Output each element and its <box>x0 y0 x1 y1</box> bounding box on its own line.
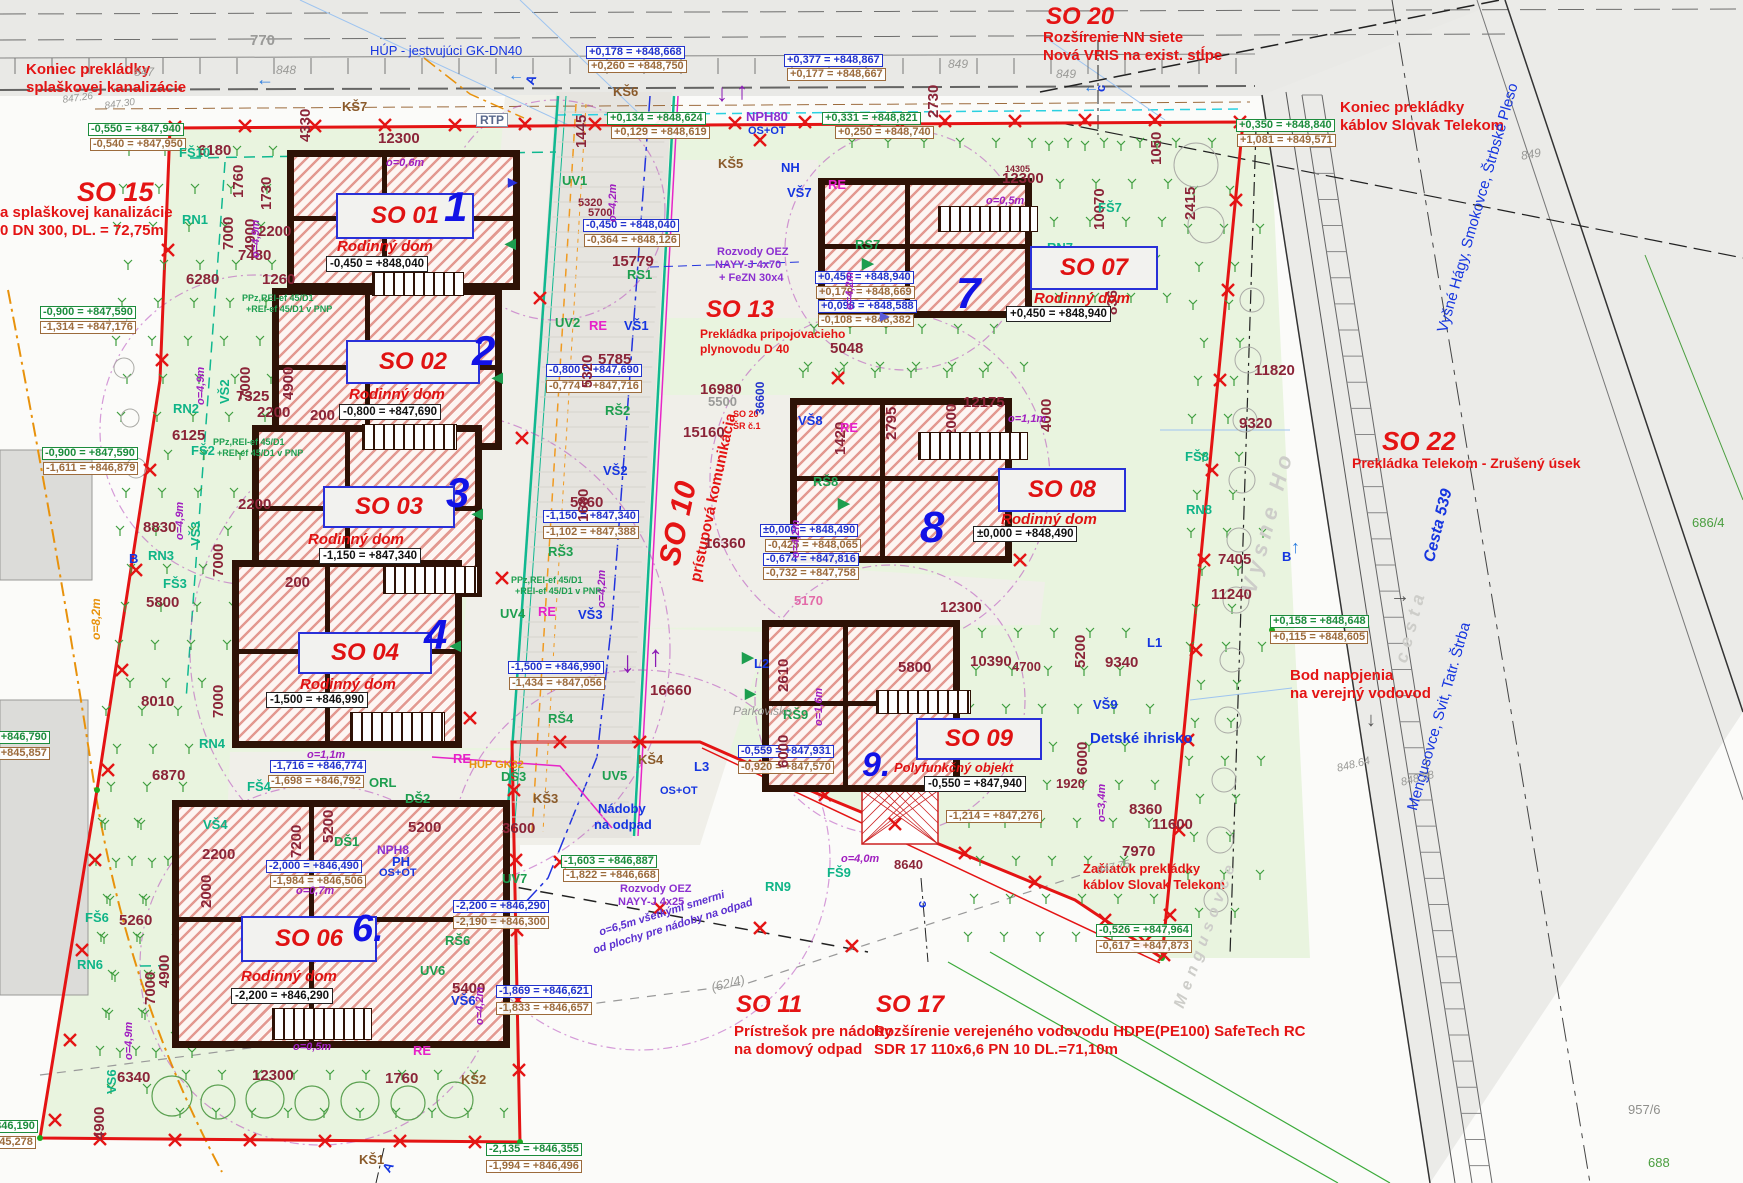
building-so-08-label: SO 08 <box>998 468 1126 512</box>
label-847-30: 847.30 <box>104 98 136 112</box>
dimension-12300: 12300 <box>378 131 420 146</box>
building-so-02-type: Rodinný dom <box>349 386 445 403</box>
elevation-marker-0-260-848-750: +0,260 = +848,750 <box>588 60 687 73</box>
dimension-6340: 6340 <box>117 1070 150 1085</box>
arrow-marker: ◀ <box>472 506 483 520</box>
object-title-so-20: SO 20 <box>1046 5 1114 29</box>
elevation-marker-0-425-848-065: -0,425 = +848,065 <box>765 539 861 552</box>
building-so-06-stair <box>272 1008 372 1040</box>
arrow-marker: ↓ <box>1366 710 1376 730</box>
infra-d-2: DŠ2 <box>405 792 430 805</box>
infra-k-2: KŠ2 <box>461 1073 486 1086</box>
elevation-marker-0-732-847-758: -0,732 = +847,758 <box>763 567 859 580</box>
dimension-16360: 16360 <box>704 536 746 551</box>
label-848-64: 848.64 <box>1336 756 1371 775</box>
infra-re: RE <box>840 421 858 434</box>
dimension-11820: 11820 <box>1254 363 1295 378</box>
dimension-6280: 6280 <box>186 272 219 287</box>
label-o-4-2m: o=4,2m <box>608 184 619 222</box>
label-847-26: 847.26 <box>62 92 94 106</box>
infra-re: RE <box>413 1044 431 1057</box>
infra-re: RE <box>538 605 556 618</box>
dimension-2200: 2200 <box>238 497 271 512</box>
infra-f-7: FŠ7 <box>1098 201 1122 214</box>
arrow-marker: ▶ <box>745 686 756 700</box>
object-note-roz-renie-nn-siete: Rozšírenie NN siete <box>1043 30 1183 45</box>
dimension-2200: 2200 <box>258 224 291 239</box>
dimension-1760: 1760 <box>385 1071 418 1086</box>
arrow-marker: ↓ <box>716 82 728 106</box>
dimension-14305: 14305 <box>1005 165 1030 174</box>
elevation-marker-0-115-848-605: +0,115 = +848,605 <box>1270 631 1368 644</box>
dimension-36600: 36600 <box>754 382 766 415</box>
dimension-7000: 7000 <box>211 685 226 718</box>
arrow-marker: ▶ <box>742 650 754 665</box>
infra-r-4: RŠ4 <box>548 712 573 725</box>
elevation-marker-0-179-848-669: +0,179 = +848,669 <box>816 286 915 299</box>
object-note-bod-napojenia: Bod napojenia <box>1290 668 1393 683</box>
label-fezn-30x4: + FeZN 30x4 <box>719 273 784 284</box>
dimension-770: 770 <box>250 33 275 48</box>
building-so-08-stair <box>918 432 1028 460</box>
elevation-marker-1-869-846-621: -1,869 = +846,621 <box>496 985 592 998</box>
elevation-marker-0-450-848-040: -0,450 = +848,040 <box>583 219 679 232</box>
building-so-03-type: Rodinný dom <box>308 531 404 548</box>
dimension-200: 200 <box>285 575 310 590</box>
elevation-marker-0-331-848-821: +0,331 = +848,821 <box>822 112 921 125</box>
elevation-marker-1-102-847-388: -1,102 = +847,388 <box>543 526 639 539</box>
dimension-5320: 5320 <box>580 355 595 388</box>
elevation-marker-0-158-848-648: +0,158 = +848,648 <box>1270 615 1369 628</box>
infra-rn6: RN6 <box>77 958 103 971</box>
elevation-marker-0-000-848-490: ±0,000 = +848,490 <box>760 524 858 537</box>
building-so-09-elevation: -0,550 = +847,940 <box>924 776 1026 792</box>
label-parkovisko: Parkovisko <box>733 705 792 717</box>
building-so-02-number: 2 <box>472 330 495 372</box>
dimension-1050: 1050 <box>1149 132 1164 165</box>
label-detsk-ihrisko: Detské ihrisko <box>1090 731 1193 746</box>
label-849: 849 <box>1056 68 1076 80</box>
building-so-08-elevation: ±0,000 = +848,490 <box>973 526 1077 542</box>
label-na-odpad: na odpad <box>594 818 652 831</box>
arrow-marker: ↑ <box>1291 538 1300 556</box>
infra-rn1: RN1 <box>182 213 208 226</box>
infra-r-8: RŠ8 <box>813 475 838 488</box>
infra-k-4: KŠ4 <box>638 753 663 766</box>
elevation-marker-1-500-846-990: -1,500 = +846,990 <box>508 661 604 674</box>
elevation-marker-1-081-849-571: +1,081 = +849,571 <box>1237 134 1336 147</box>
arrow-marker: ← <box>508 68 524 84</box>
label-b: B <box>1282 550 1291 563</box>
building-so-03-stair <box>383 566 478 594</box>
label-rozvody-oez: Rozvody OEZ <box>717 247 789 258</box>
label-o-0-7m: o=0,7m <box>296 886 334 897</box>
building-so-07-number: 7 <box>956 272 980 316</box>
elevation-marker-2-633-845-857: -2,633 = +845,857 <box>0 747 50 760</box>
building-so-03-label: SO 03 <box>323 486 455 528</box>
label-o-4-9m: o=4,9m <box>124 1022 135 1060</box>
site-plan-canvas: SO 011Rodinný dom-0,450 = +848,040SO 022… <box>0 0 1743 1183</box>
elevation-marker-0-550-847-940: -0,550 = +847,940 <box>88 123 184 136</box>
arrow-marker: → <box>1390 586 1410 606</box>
label-849: 849 <box>1520 147 1542 162</box>
building-so-01-number: 1 <box>444 186 467 228</box>
elevation-marker-1-822-846-668: -1,822 = +846,668 <box>563 869 659 882</box>
object-title-so-15: SO 15 <box>77 179 154 206</box>
building-so-06-elevation: -2,200 = +846,290 <box>231 988 333 1004</box>
label-o-4-9m: o=4,9m <box>175 502 186 540</box>
infra-k-6: KŠ6 <box>613 85 638 98</box>
label-o-3-4m: o=3,4m <box>1097 784 1108 822</box>
infra-r-2: RŠ2 <box>605 404 630 417</box>
elevation-marker-1-833-846-657: -1,833 = +846,657 <box>496 1002 592 1015</box>
label-849: 849 <box>948 58 968 70</box>
elevation-marker-2-190-846-300: -2,190 = +846,300 <box>453 916 549 929</box>
elevation-marker-0-134-848-624: +0,134 = +848,624 <box>607 112 706 125</box>
building-so-07-type: Rodinný dom <box>1034 290 1130 307</box>
infra-d-1: DŠ1 <box>334 835 359 848</box>
infra-rs1: RS1 <box>627 268 652 281</box>
infra-uv6: UV6 <box>420 964 445 977</box>
object-title-so-13: SO 13 <box>706 298 774 322</box>
label-848: 848 <box>276 64 296 76</box>
object-note-a-spla-kovej-kanaliz-cie: a splaškovej kanalizácie <box>0 205 173 220</box>
dimension-16660: 16660 <box>650 683 692 698</box>
dimension-200: 200 <box>310 408 335 423</box>
arrow-marker: ↑ <box>648 642 663 672</box>
label-o-4-0m: o=4,0m <box>841 854 879 865</box>
dimension-5048: 5048 <box>830 341 863 356</box>
elevation-marker-2-000-846-490: -2,000 = +846,490 <box>266 860 362 873</box>
label-os-ot: OS+OT <box>660 786 698 797</box>
arrow-marker: ↑ <box>736 80 748 104</box>
dimension-8010: 8010 <box>141 694 174 709</box>
object-note-sdr-17-110x6-6-pn-10-dl-71-10m: SDR 17 110x6,6 PN 10 DL.=71,10m <box>874 1042 1118 1057</box>
label-o-8-2m: o=8,2m <box>90 598 102 640</box>
elevation-marker-1-603-846-887: -1,603 = +846,887 <box>561 855 657 868</box>
infra-v-2: VŠ2 <box>218 379 231 404</box>
dimension-5320: 5320 <box>578 198 602 209</box>
label-o-1-1m: o=1,1m <box>307 750 345 761</box>
label-ppz-rei-ef-45-d1: PPz,REI-ef 45/D1 <box>213 438 285 447</box>
arrow-marker: ← <box>1083 80 1099 96</box>
elevation-marker-0-900-847-590: -0,900 = +847,590 <box>42 447 138 460</box>
infra-f-8: FŠ8 <box>1185 450 1209 463</box>
building-so-01-type: Rodinný dom <box>337 238 433 255</box>
elevation-marker-1-434-847-056: -1,434 = +847,056 <box>509 677 605 690</box>
dimension-1920: 1920 <box>1056 777 1085 790</box>
label-o-1-6m: o=1,6m <box>814 688 825 726</box>
infra-v-6: VŠ6 <box>451 994 476 1007</box>
label-hup-gk32: HUP GK32 <box>469 760 524 771</box>
infra-v-8: VŠ8 <box>798 414 823 427</box>
building-so-04-label: SO 04 <box>298 632 432 674</box>
label-nayy-j-4x70: NAYY-J 4x70 <box>715 260 781 271</box>
building-so-06-type: Rodinný dom <box>241 968 337 985</box>
infra-l1: L1 <box>1147 636 1162 649</box>
label-847: 847 <box>134 66 154 78</box>
dimension-2795: 2795 <box>884 407 899 440</box>
label-vysne-ho: Vysne Ho <box>1238 447 1298 596</box>
object-note-k-blov-slovak-telekom: káblov Slovak Telekom <box>1340 118 1504 133</box>
infra-v-3: VŠ3 <box>189 521 202 546</box>
dimension-5800: 5800 <box>146 595 179 610</box>
dimension-2000: 2000 <box>199 875 214 908</box>
label-h-p-jestvuj-ci-gk-dn40: HÚP - jestvujúci GK-DN40 <box>370 44 522 57</box>
object-note-k-blov-slovak-telekom: káblov Slovak Telekom <box>1083 878 1225 891</box>
building-so-07-label: SO 07 <box>1030 246 1158 290</box>
arrow-marker: ▶ <box>508 176 517 188</box>
object-note-plynovodu-d-40: plynovodu D 40 <box>700 343 789 355</box>
infra-k-5: KŠ5 <box>718 157 743 170</box>
dimension-2200: 2200 <box>202 847 235 862</box>
elevation-marker-1-716-846-774: -1,716 = +846,774 <box>270 760 366 773</box>
infra-d-3: DŠ3 <box>501 770 526 783</box>
label-cesta-539: Cesta 539 <box>1422 488 1456 564</box>
object-note-prekl-dka-pripojovacieho: Prekládka pripojovacieho <box>700 328 845 340</box>
dimension-3600: 3600 <box>502 821 535 836</box>
label-os-ot: OS+OT <box>379 868 417 879</box>
building-so-09-stair <box>876 690 971 714</box>
elevation-marker-1-214-847-276: -1,214 = +847,276 <box>946 810 1042 823</box>
building-so-07-stair <box>938 206 1038 232</box>
infra-f-10: FŠ10 <box>179 146 210 159</box>
infra-uv1: UV1 <box>562 174 587 187</box>
label-rtp: RTP <box>476 113 508 127</box>
building-so-06-number: 6. <box>352 910 384 948</box>
dimension-1760: 1760 <box>231 165 246 198</box>
label-c: c <box>915 901 928 908</box>
elevation-marker-0-364-848-126: -0,364 = +848,126 <box>584 234 680 247</box>
elevation-marker-3-212-845-278: -3,212 = +845,278 <box>0 1136 36 1149</box>
elevation-marker-0-250-848-740: +0,250 = +848,740 <box>835 126 934 139</box>
infra-v-2: VŠ2 <box>603 464 628 477</box>
object-title-so-17: SO 17 <box>876 993 944 1017</box>
label-rei-ef-45-d1-v-pnp: +REI-ef 45/D1 v PNP <box>246 305 332 314</box>
dimension-2730: 2730 <box>926 85 941 118</box>
elevation-marker-0-129-848-619: +0,129 = +848,619 <box>611 126 710 139</box>
elevation-marker-1-698-846-792: -1,698 = +846,792 <box>268 775 364 788</box>
infra-f-9: FŠ9 <box>827 866 851 879</box>
building-so-02-label: SO 02 <box>346 340 480 384</box>
object-note-pr-stre-ok-pre-n-doby: Prístrešok pre nádoby <box>734 1024 892 1039</box>
arrow-marker: ▶ <box>880 310 889 322</box>
dimension-7200: 7200 <box>289 825 304 858</box>
dimension-8360: 8360 <box>1129 802 1162 817</box>
label-957-6: 957/6 <box>1628 1103 1661 1116</box>
dimension-5200: 5200 <box>408 820 441 835</box>
elevation-marker-0-526-847-964: -0,526 = +847,964 <box>1096 924 1192 937</box>
object-note-0-dn-300-dl-72-75m: 0 DN 300, DL. = 72,75m <box>0 223 164 238</box>
object-note-na-verejn-vodovod: na verejný vodovod <box>1290 686 1431 701</box>
infra-nh: NH <box>781 161 800 174</box>
dimension-5200: 5200 <box>1073 635 1088 668</box>
dimension-9340: 9340 <box>1105 655 1138 670</box>
elevation-marker-0-177-848-667: +0,177 = +848,667 <box>787 68 886 81</box>
dimension-6000: 6000 <box>776 735 791 768</box>
object-note-prekl-dka-telekom-zru-en-sek: Prekládka Telekom - Zrušený úsek <box>1352 456 1581 470</box>
dimension-12300: 12300 <box>252 1068 294 1083</box>
building-so-09-number: 9. <box>862 748 890 782</box>
elevation-marker-0-377-848-867: +0,377 = +848,867 <box>784 54 883 67</box>
dimension-1260: 1260 <box>262 272 295 287</box>
infra-f-2: FŠ2 <box>191 444 215 457</box>
dimension-5800: 5800 <box>898 660 931 675</box>
building-so-04-number: 4 <box>424 614 447 656</box>
labels-layer: SO 15a splaškovej kanalizácie0 DN 300, D… <box>0 0 1743 1183</box>
label-rei-ef-45-d1-v-pnp: +REI-ef 45/D1 v PNP <box>217 449 303 458</box>
dimension-6870: 6870 <box>152 768 185 783</box>
infra-v-7: VŠ7 <box>787 186 812 199</box>
infra-f-4: FŠ4 <box>247 780 271 793</box>
elevation-marker-0-098-848-588: +0,098 = +848,588 <box>818 300 917 313</box>
elevation-marker-0-178-848-668: +0,178 = +848,668 <box>586 46 685 59</box>
arrow-marker: ◀ <box>505 236 516 250</box>
dimension-6125: 6125 <box>172 428 205 443</box>
label-b: B <box>129 552 138 565</box>
arrow-marker: ← <box>256 70 274 88</box>
object-note-spla-kovej-kanaliz-cie: splaškovej kanalizácie <box>26 80 186 95</box>
building-so-04-stair <box>350 712 445 742</box>
arrow-marker: ↓ <box>620 648 635 678</box>
dimension-1730: 1730 <box>259 177 274 210</box>
elevation-marker-2-135-846-355: -2,135 = +846,355 <box>486 1143 582 1156</box>
arrow-marker: ▶ <box>838 496 850 511</box>
building-so-04-type: Rodinný dom <box>300 676 396 693</box>
building-so-01-elevation: -0,450 = +848,040 <box>326 256 428 272</box>
infra-f-3: FŠ3 <box>163 577 187 590</box>
infra-l2: L2 <box>754 657 769 670</box>
label-o-0-5m: o=0,5m <box>293 1042 331 1053</box>
label-o-4-9m: o=4,9m <box>196 367 207 405</box>
dimension-7000: 7000 <box>221 217 236 250</box>
building-so-02-elevation: -0,800 = +847,690 <box>339 404 441 420</box>
infra-v-4: VŠ4 <box>203 818 228 831</box>
dimension-8830: 8830 <box>143 520 176 535</box>
label-o-4-2m: o=4,2m <box>791 520 802 558</box>
dimension-4900: 4900 <box>157 955 172 988</box>
elevation-marker-1-994-846-496: -1,994 = +846,496 <box>486 1160 582 1173</box>
infra-rn8: RN8 <box>1186 503 1212 516</box>
label-rozvody-oez: Rozvody OEZ <box>620 884 692 895</box>
dimension-9320: 9320 <box>1239 416 1272 431</box>
label-o-4-9m: o=4,9m <box>251 220 262 258</box>
label-os-ot: OS+OT <box>748 126 786 137</box>
building-so-09-label: SO 09 <box>916 718 1042 760</box>
infra-uv2: UV2 <box>555 316 580 329</box>
elevation-marker-0-617-847-873: -0,617 = +847,873 <box>1096 940 1192 953</box>
dimension-2200: 2200 <box>257 405 290 420</box>
dimension-10390: 10390 <box>970 654 1012 669</box>
label-ppz-rei-ef-45-d1: PPz,REI-ef 45/D1 <box>242 294 314 303</box>
label-nph80: NPH80 <box>746 110 788 123</box>
elevation-marker-0-108-848-382: -0,108 = +848,382 <box>818 314 914 327</box>
object-note-nov-vris-na-exist-st-pe: Nová VRIS na exist. stĺpe <box>1043 48 1222 63</box>
elevation-marker-0-350-848-840: +0,350 = +848,840 <box>1236 119 1335 132</box>
infra-k-3: KŠ3 <box>533 792 558 805</box>
dimension-7000: 7000 <box>211 544 226 577</box>
infra-f-6: FŠ6 <box>85 911 109 924</box>
object-note-koniec-prekl-dky: Koniec prekládky <box>1340 100 1464 115</box>
infra-rn9: RN9 <box>765 880 791 893</box>
elevation-marker-1-314-847-176: -1,314 = +847,176 <box>40 321 136 334</box>
dimension-4900: 4900 <box>92 1107 107 1140</box>
dimension-2610: 2610 <box>776 659 791 692</box>
object-title-so-22: SO 22 <box>1382 428 1456 454</box>
elevation-marker-1-700-846-790: -1,700 = +846,790 <box>0 731 50 744</box>
dimension-7000: 7000 <box>238 367 253 400</box>
label-n-doby: Nádoby <box>598 802 646 815</box>
infra-re: RE <box>589 319 607 332</box>
infra-orl: ORL <box>369 776 396 789</box>
dimension-2415: 2415 <box>1183 187 1198 220</box>
label-686-4: 686/4 <box>1692 516 1725 529</box>
label-o-1-1m: o=1,1m <box>1008 414 1046 425</box>
object-note-koniec-prekl-dky: Koniec prekládky <box>26 62 150 77</box>
elevation-marker-0-674-847-816: -0,674 = +847,816 <box>763 553 859 566</box>
dimension-5170: 5170 <box>794 594 823 607</box>
infra-uv5: UV5 <box>602 769 627 782</box>
dimension-7970: 7970 <box>1122 844 1155 859</box>
dimension-8640: 8640 <box>894 858 923 871</box>
label-o-0-6m: o=0,6m <box>386 158 424 169</box>
building-so-03-elevation: -1,150 = +847,340 <box>319 548 421 564</box>
building-so-02-stair <box>362 424 457 450</box>
arrow-marker: ▶ <box>862 256 874 271</box>
building-so-01-stair <box>372 272 464 296</box>
dimension-11600: 11600 <box>1152 817 1193 832</box>
dimension-5260: 5260 <box>119 913 152 928</box>
infra-l3: L3 <box>694 760 709 773</box>
dimension-1445: 1445 <box>574 115 589 148</box>
elevation-marker-0-900-847-590: -0,900 = +847,590 <box>40 306 136 319</box>
elevation-marker-0-540-847-950: -0,540 = +847,950 <box>90 138 186 151</box>
dimension-15160: 15160 <box>683 425 725 440</box>
infra-uv7: UV7 <box>502 872 527 885</box>
object-title-so-11: SO 11 <box>736 993 802 1017</box>
infra-rs7: RS7 <box>855 238 880 251</box>
infra-uv4: UV4 <box>500 607 525 620</box>
infra-v-9: VŠ9 <box>1093 698 1118 711</box>
dimension-5500: 5500 <box>708 395 737 408</box>
arrow-marker: ◀ <box>450 638 461 652</box>
dimension-6000: 6000 <box>1075 742 1090 775</box>
dimension-12175: 12175 <box>963 395 1005 410</box>
infra-rn3: RN3 <box>148 549 174 562</box>
elevation-marker-0-450-848-940: +0,450 = +848,940 <box>815 271 914 284</box>
building-so-07-elevation: +0,450 = +848,940 <box>1006 306 1111 322</box>
infra-r-3: RŠ3 <box>548 545 573 558</box>
building-so-09-type: Polyfunkčný objekt <box>894 760 1013 775</box>
infra-rn4: RN4 <box>199 737 225 750</box>
label-a: A <box>523 73 538 86</box>
label-o-4-2m: o=4,2m <box>475 987 486 1025</box>
dimension-12300: 12300 <box>940 600 982 615</box>
dimension-4330: 4330 <box>298 109 313 142</box>
building-so-03-number: 3 <box>446 472 469 514</box>
label-o-4-2m: o=4,2m <box>845 272 856 310</box>
elevation-marker-1-611-846-879: -1,611 = +846,879 <box>43 462 138 475</box>
building-so-04-elevation: -1,500 = +846,990 <box>266 692 368 708</box>
dimension-4900: 4900 <box>281 367 296 400</box>
dimension-4700: 4700 <box>1012 660 1041 673</box>
label-a: A <box>380 1160 396 1175</box>
elevation-marker-2-300-846-190: -2,300 = +846,190 <box>0 1120 38 1133</box>
infra-k-7: KŠ7 <box>342 100 367 113</box>
object-note-roz-renie-verejen-ho-vodovodu-hdpe-pe100: Rozšírenie verejeného vodovodu HDPE(PE10… <box>874 1024 1306 1039</box>
infra-vs6: VS6 <box>105 1069 118 1094</box>
label-688: 688 <box>1648 1156 1670 1169</box>
